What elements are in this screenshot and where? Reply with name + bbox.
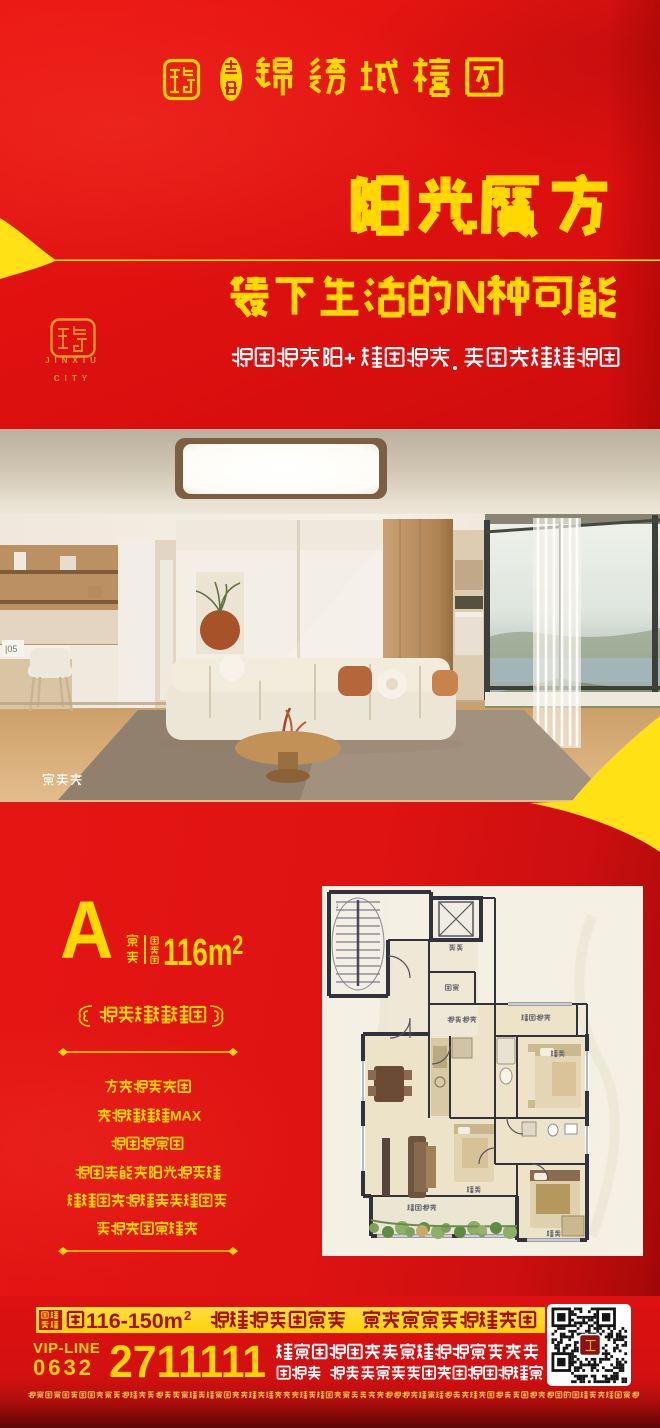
svg-text:2: 2: [184, 1310, 191, 1323]
svg-text:|05: |05: [5, 644, 17, 654]
svg-text:MAX: MAX: [170, 1108, 202, 1124]
svg-text:N: N: [454, 275, 487, 323]
svg-text:↓: ↓: [335, 901, 339, 910]
svg-text:116-150m: 116-150m: [86, 1310, 183, 1332]
svg-text:+: +: [344, 348, 356, 370]
